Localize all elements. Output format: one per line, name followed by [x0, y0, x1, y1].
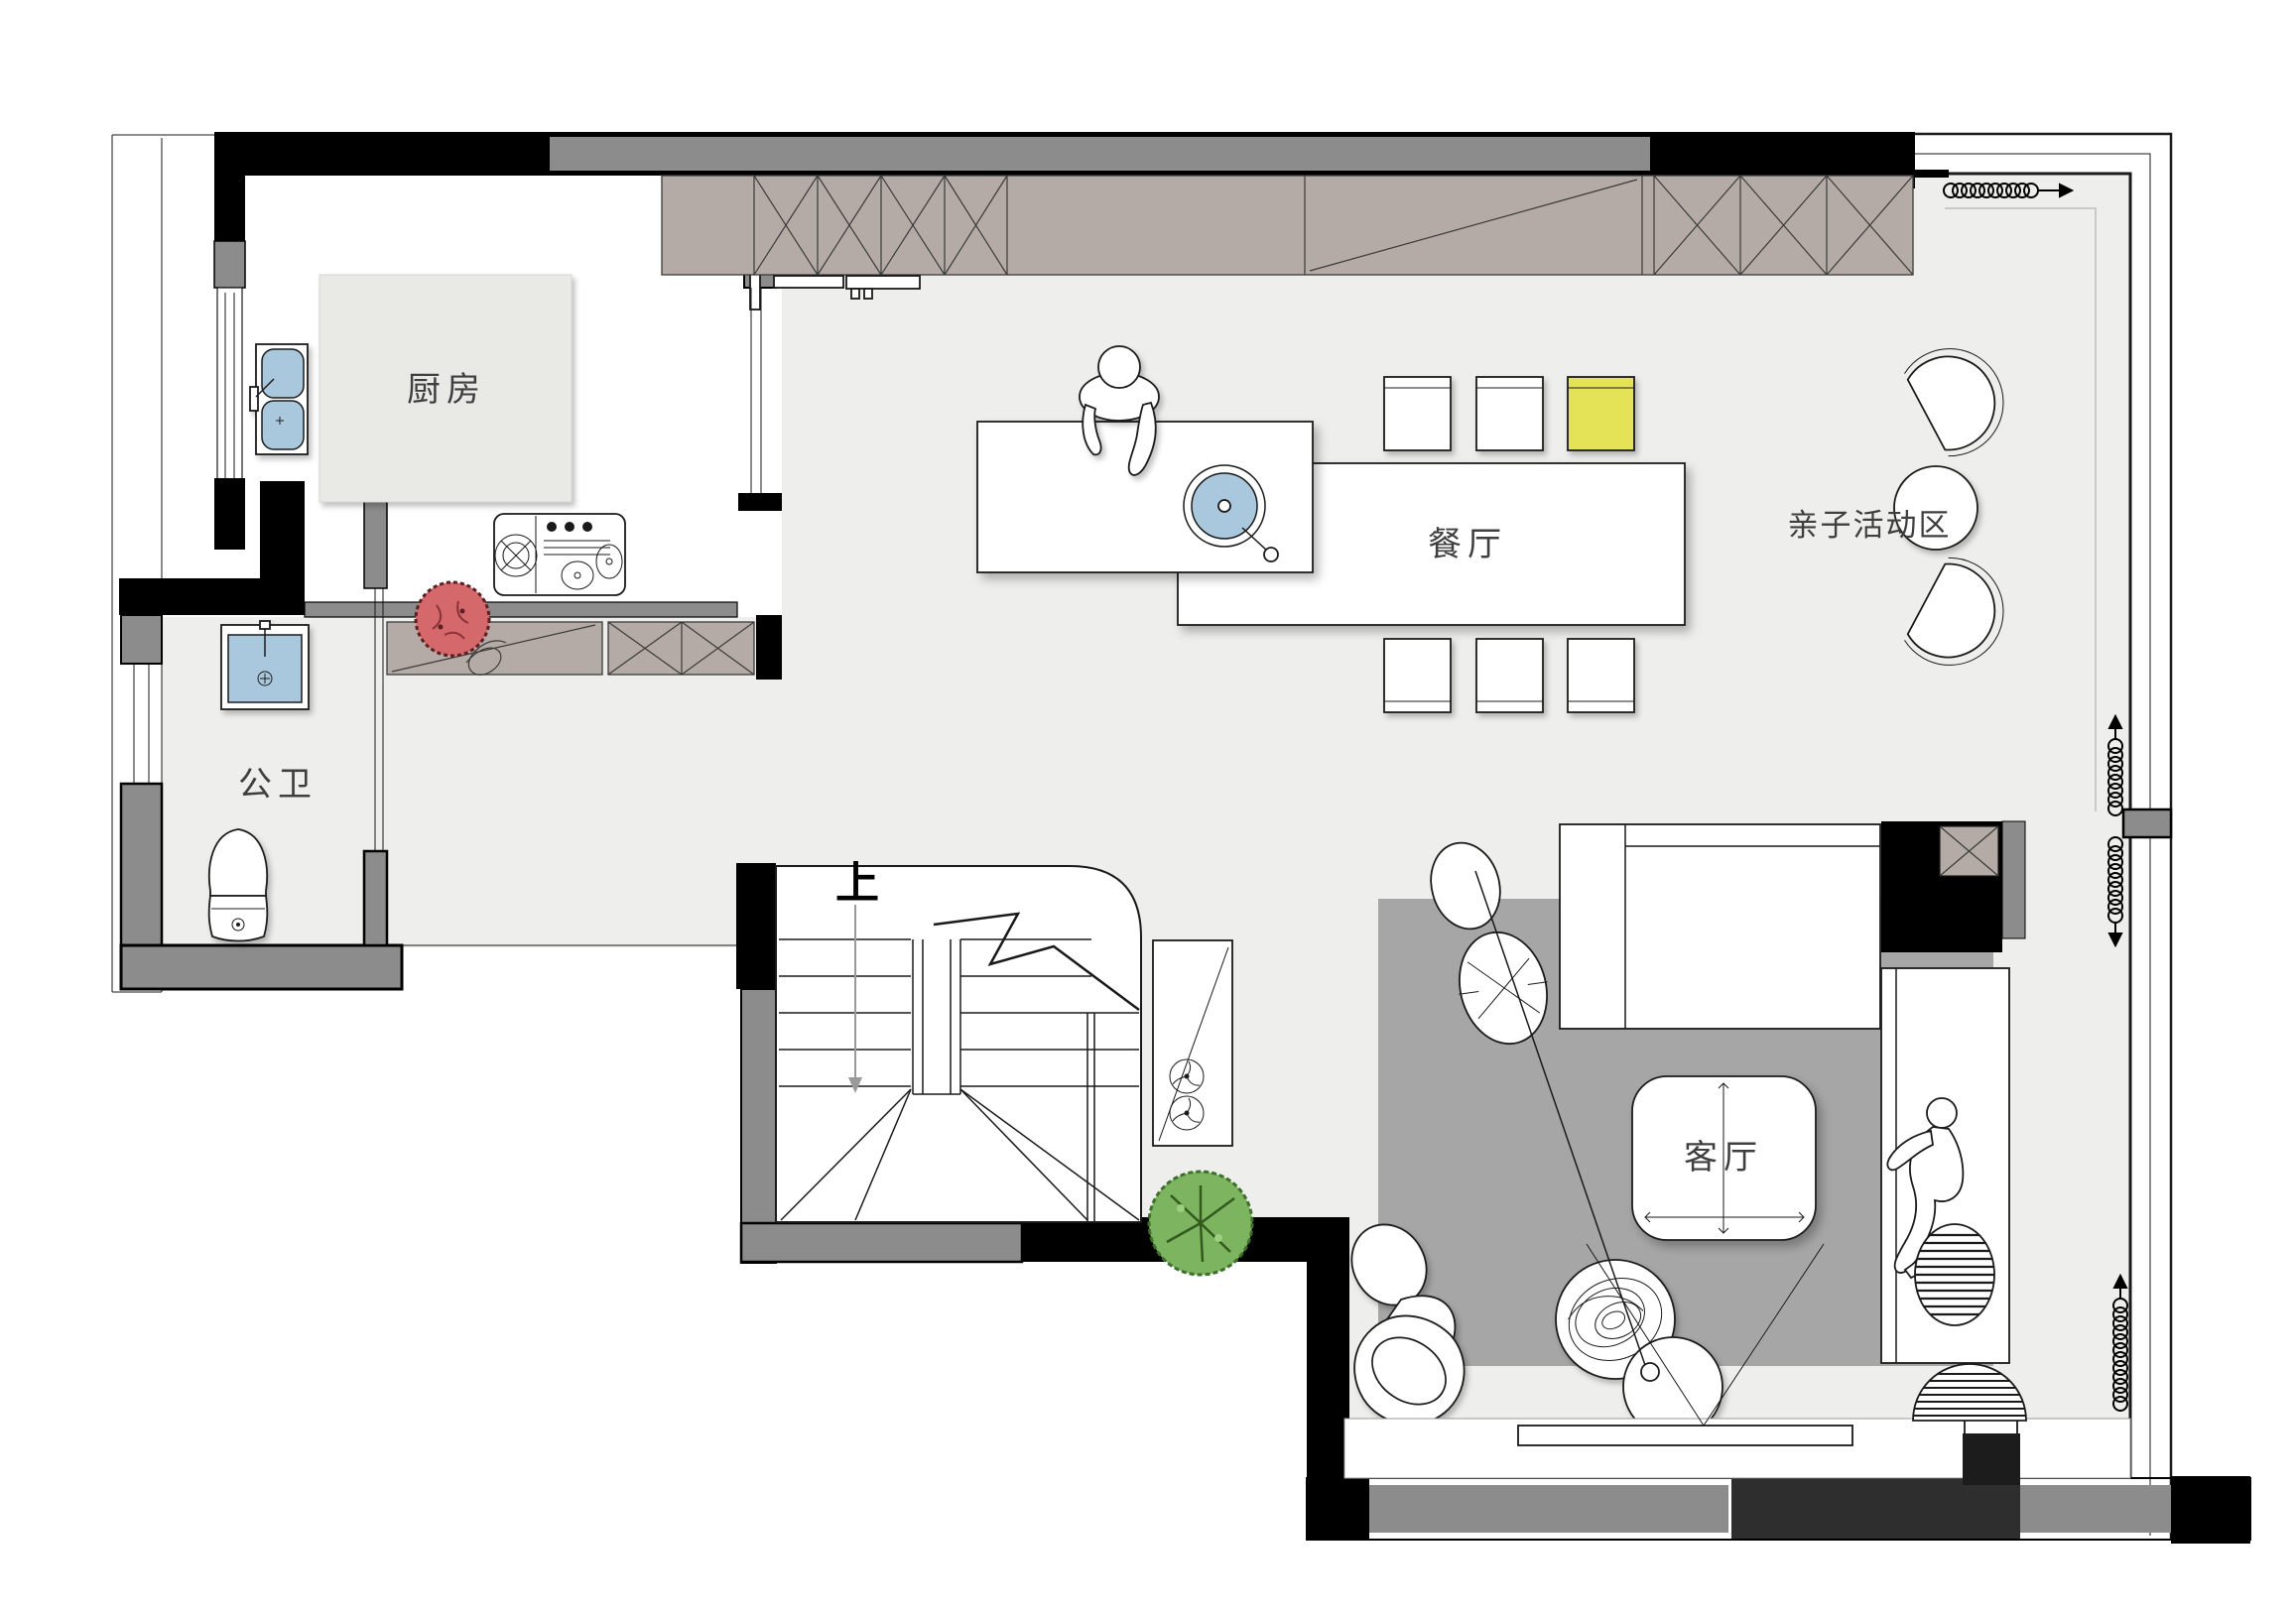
dining-label: 餐厅 [1428, 525, 1507, 564]
red-plant-icon [416, 582, 489, 656]
tv [1518, 1426, 1852, 1445]
floor-plan: 厨房 [0, 0, 2296, 1614]
bottom-wall [1307, 1476, 2250, 1544]
tv-cabinet [1881, 821, 2025, 952]
washbasin [221, 621, 309, 709]
stove [494, 514, 625, 595]
bathroom-label: 公卫 [238, 765, 318, 805]
kitchen-sink [250, 344, 308, 454]
stairs-up-label: 上 [835, 858, 879, 909]
kids-area-label: 亲子活动区 [1788, 508, 1952, 544]
fan-cabinet [1153, 940, 1232, 1146]
living-label: 客厅 [1684, 1138, 1763, 1178]
kitchen-window [217, 288, 242, 481]
lounge-chair [1354, 1316, 1465, 1425]
kitchen-label: 厨房 [407, 370, 486, 410]
window-mullion [2123, 809, 2171, 837]
staircase: 上 [776, 858, 1141, 1222]
green-plant-icon [1149, 1172, 1252, 1275]
top-counter-band [550, 137, 1650, 171]
toilet [209, 829, 268, 941]
sofa [1560, 824, 1880, 1029]
